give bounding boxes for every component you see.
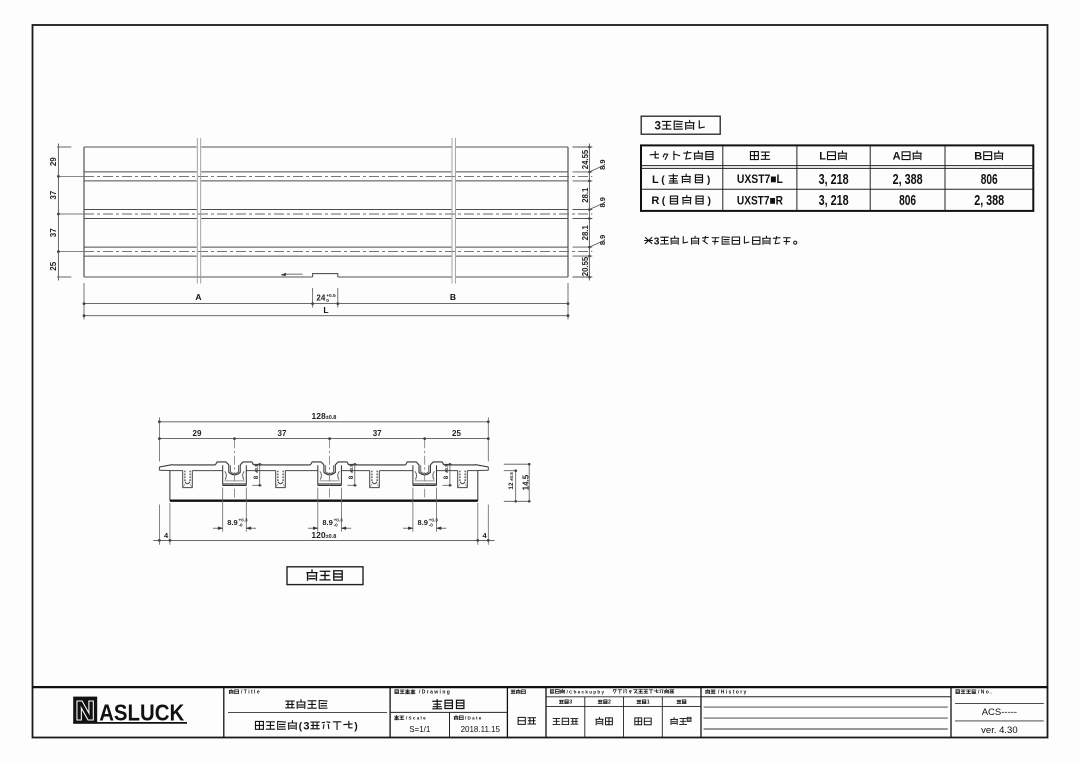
svg-text:3: 3 <box>569 700 572 706</box>
svg-text:806: 806 <box>981 171 998 188</box>
svg-text:-0: -0 <box>334 523 339 528</box>
svg-text:(: ( <box>662 196 666 207</box>
svg-text:±0.5: ±0.5 <box>349 464 354 473</box>
svg-text:8.9: 8.9 <box>598 197 607 207</box>
svg-text:8.9: 8.9 <box>322 518 332 527</box>
svg-text:UXST7■L: UXST7■L <box>737 172 783 186</box>
svg-text:R: R <box>651 195 659 207</box>
svg-text:28.1: 28.1 <box>581 225 590 241</box>
svg-text:3: 3 <box>303 721 309 733</box>
svg-text:±0.5: ±0.5 <box>254 464 259 473</box>
svg-text:): ) <box>707 175 710 186</box>
svg-text:3: 3 <box>655 121 661 133</box>
svg-text:14.5: 14.5 <box>522 474 531 490</box>
svg-text:8.9: 8.9 <box>417 518 427 527</box>
svg-text:806: 806 <box>899 192 916 209</box>
svg-text:): ) <box>354 722 357 733</box>
svg-text:L: L <box>819 151 826 163</box>
svg-text:24: 24 <box>316 294 325 303</box>
svg-text:2: 2 <box>608 700 611 706</box>
svg-text:ACS-----: ACS----- <box>982 707 1017 718</box>
svg-text:ASLUCK: ASLUCK <box>99 700 184 726</box>
svg-text:A: A <box>195 292 201 302</box>
svg-text:): ) <box>708 196 711 207</box>
svg-text:±0.8: ±0.8 <box>326 534 337 540</box>
svg-text:±0.5: ±0.5 <box>509 472 514 481</box>
svg-text:2018.11.15: 2018.11.15 <box>461 725 501 734</box>
svg-text:25: 25 <box>452 429 461 438</box>
svg-text:UXST7■R: UXST7■R <box>737 193 783 207</box>
svg-text:/ H i s t o r y: / H i s t o r y <box>718 690 747 696</box>
svg-text:120: 120 <box>311 530 325 540</box>
svg-text:(: ( <box>661 175 665 186</box>
svg-text:3: 3 <box>654 236 660 247</box>
svg-text:12: 12 <box>508 482 515 490</box>
svg-text:29: 29 <box>193 429 202 438</box>
svg-text:8.9: 8.9 <box>598 235 607 245</box>
svg-text:S=1/1: S=1/1 <box>409 725 431 734</box>
svg-text:1: 1 <box>647 700 650 706</box>
svg-text:3, 218: 3, 218 <box>819 171 849 188</box>
svg-text:20.55: 20.55 <box>581 256 590 276</box>
svg-text:N: N <box>76 696 95 726</box>
svg-text:/ D r a w i n g: / D r a w i n g <box>419 690 450 696</box>
svg-text:B: B <box>450 292 456 302</box>
svg-text:128: 128 <box>312 411 326 421</box>
svg-text:/ D a t e: / D a t e <box>465 715 482 720</box>
svg-text:37: 37 <box>49 228 58 237</box>
svg-text:24.55: 24.55 <box>581 149 590 169</box>
svg-text:-0: -0 <box>239 523 244 528</box>
svg-text:±0.5: ±0.5 <box>444 464 449 473</box>
svg-text:3, 218: 3, 218 <box>819 192 849 209</box>
svg-text:L: L <box>323 305 328 315</box>
svg-text:/ C h e c k u p b y: / C h e c k u p b y <box>567 689 605 694</box>
svg-text:0: 0 <box>326 298 329 304</box>
svg-text:±0.8: ±0.8 <box>326 415 337 421</box>
svg-text:/ S c a l e: / S c a l e <box>406 715 426 720</box>
svg-text:B: B <box>974 151 982 163</box>
svg-text:8.9: 8.9 <box>227 518 237 527</box>
svg-text:(: ( <box>299 722 303 733</box>
svg-text:ver. 4.30: ver. 4.30 <box>981 725 1017 736</box>
svg-text:28.1: 28.1 <box>581 187 590 203</box>
svg-text:-0: -0 <box>429 523 434 528</box>
svg-text:/ N o .: / N o . <box>978 690 992 696</box>
svg-text:29: 29 <box>49 157 58 166</box>
svg-text:37: 37 <box>49 190 58 199</box>
svg-text:25: 25 <box>49 261 58 270</box>
svg-text:8.9: 8.9 <box>598 159 607 169</box>
svg-text:/ T i t l e: / T i t l e <box>241 690 260 696</box>
svg-text:37: 37 <box>373 429 382 438</box>
svg-text:2, 388: 2, 388 <box>974 192 1004 209</box>
svg-text:37: 37 <box>278 429 287 438</box>
svg-text:L: L <box>652 174 659 186</box>
svg-text:2, 388: 2, 388 <box>893 171 923 188</box>
svg-text:+0.5: +0.5 <box>326 293 336 299</box>
svg-text:A: A <box>893 151 901 163</box>
